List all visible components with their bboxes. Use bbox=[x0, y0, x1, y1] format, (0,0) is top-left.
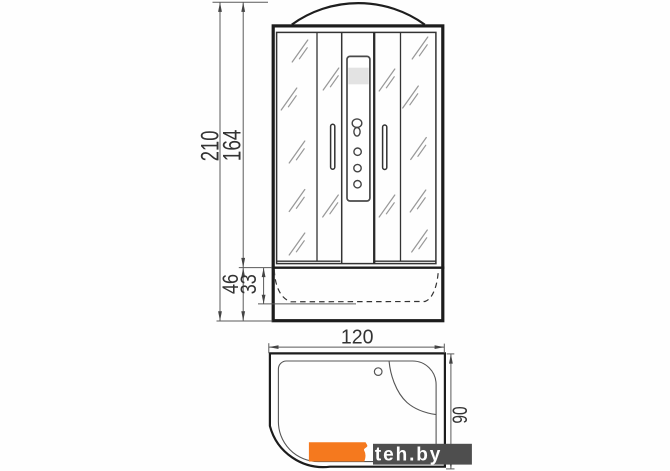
svg-text:33: 33 bbox=[236, 274, 261, 294]
svg-text:teh.by: teh.by bbox=[375, 444, 442, 465]
svg-text:120: 120 bbox=[341, 327, 374, 349]
svg-text:90: 90 bbox=[448, 406, 472, 423]
svg-text:164: 164 bbox=[219, 130, 247, 162]
